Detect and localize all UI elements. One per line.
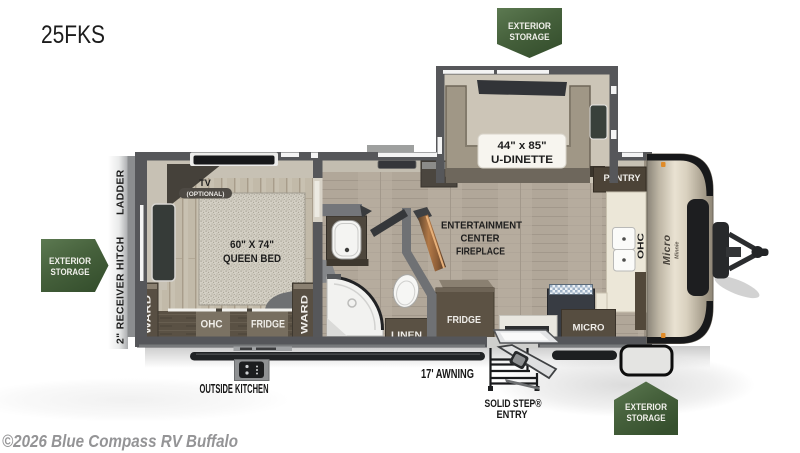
svg-text:LADDER: LADDER <box>115 169 127 215</box>
svg-text:2" RECEIVER HITCH: 2" RECEIVER HITCH <box>115 236 127 344</box>
svg-text:MICRO: MICRO <box>573 323 605 334</box>
svg-text:ENTRY: ENTRY <box>497 409 529 421</box>
svg-text:44" x 85": 44" x 85" <box>498 140 547 152</box>
svg-text:OUTSIDE KITCHEN: OUTSIDE KITCHEN <box>200 381 269 396</box>
svg-text:17' AWNING: 17' AWNING <box>421 367 474 381</box>
svg-text:©2026 Blue Compass RV Buffalo: ©2026 Blue Compass RV Buffalo <box>2 431 238 451</box>
svg-text:STORAGE: STORAGE <box>51 267 90 278</box>
svg-text:QUEEN BED: QUEEN BED <box>223 253 281 265</box>
svg-text:Micro: Micro <box>661 234 673 265</box>
svg-text:FIREPLACE: FIREPLACE <box>456 247 505 258</box>
svg-text:EXTERIOR: EXTERIOR <box>49 256 91 267</box>
svg-text:EXTERIOR: EXTERIOR <box>625 402 667 413</box>
svg-text:25FKS: 25FKS <box>41 21 105 49</box>
svg-text:STORAGE: STORAGE <box>627 413 666 424</box>
svg-text:WARD: WARD <box>300 295 311 334</box>
svg-text:CENTER: CENTER <box>461 234 501 245</box>
svg-text:FRIDGE: FRIDGE <box>447 315 481 326</box>
svg-text:FRIDGE: FRIDGE <box>251 319 285 331</box>
svg-text:PANTRY: PANTRY <box>604 173 641 183</box>
svg-text:OHC: OHC <box>637 233 646 259</box>
svg-text:Minnie: Minnie <box>675 242 681 259</box>
svg-text:EXTERIOR: EXTERIOR <box>508 21 551 32</box>
svg-text:STORAGE: STORAGE <box>510 32 550 43</box>
svg-text:60" X 74": 60" X 74" <box>230 239 274 251</box>
svg-text:OHC: OHC <box>201 319 223 331</box>
svg-text:(OPTIONAL): (OPTIONAL) <box>187 191 225 198</box>
svg-text:TV: TV <box>199 178 211 188</box>
svg-text:ENTERTAINMENT: ENTERTAINMENT <box>441 221 522 232</box>
svg-text:U-DINETTE: U-DINETTE <box>491 154 553 166</box>
